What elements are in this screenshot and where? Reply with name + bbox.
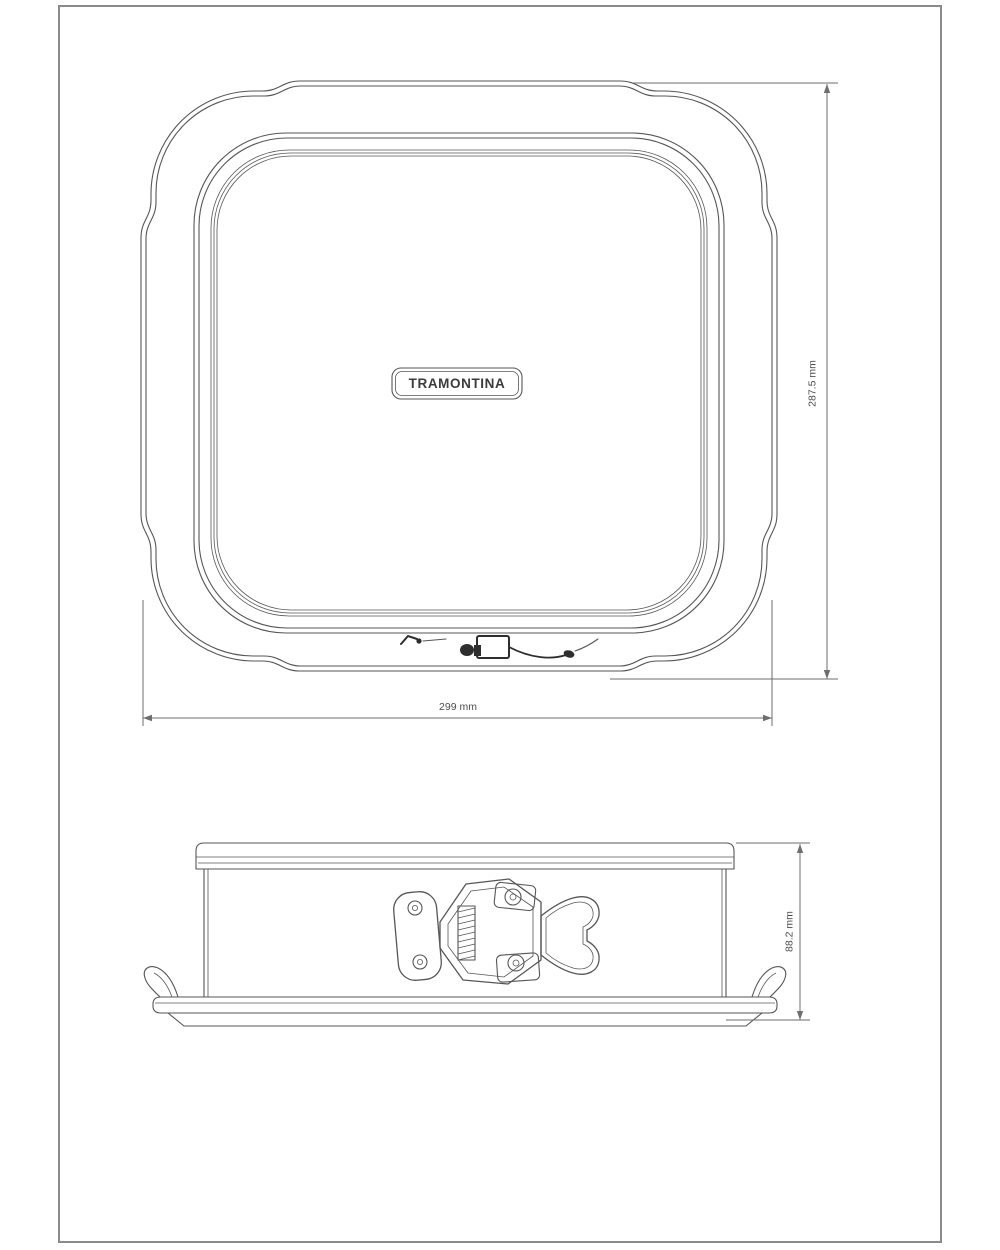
brand-logo-label: TRAMONTINA — [392, 368, 522, 399]
side-view-height-dimension — [726, 843, 810, 1020]
drawing-frame — [59, 6, 941, 1242]
base-flange — [153, 997, 777, 1013]
latch-tab-bottom — [496, 953, 540, 983]
depth-dimension-label: 88.2 mm — [784, 892, 797, 972]
width-dimension-label: 299 mm — [418, 701, 498, 714]
rivet-top-left — [408, 901, 422, 915]
arrow-up-icon — [797, 844, 803, 853]
latch-lever-grip-inner — [546, 902, 593, 969]
latch-pin-dot — [416, 638, 421, 643]
latch-tab-top — [494, 882, 536, 911]
latch-clamp-body — [440, 879, 541, 984]
rim-band — [196, 843, 734, 869]
latch-top-view — [401, 636, 598, 659]
height-dimension-label: 287.5 mm — [807, 344, 820, 424]
base-tab-right — [752, 967, 786, 997]
drawing-svg — [0, 0, 1000, 1250]
rivet-top-left-center — [412, 905, 417, 910]
base-tab-left — [144, 967, 178, 997]
latch-lever-grip — [541, 897, 599, 974]
latch-lever-tail — [575, 639, 598, 651]
latch-clamp-bracket — [477, 636, 509, 658]
arrow-left-icon — [143, 715, 152, 721]
latch-clamp-edge — [474, 645, 481, 656]
latch-pin-mark — [401, 636, 417, 644]
latch-side-view — [392, 879, 599, 984]
technical-drawing-canvas: TRAMONTINA 287.5 mm 299 mm 88.2 mm — [0, 0, 1000, 1250]
latch-link-line — [423, 639, 446, 641]
rivet-top-right-center — [510, 894, 516, 900]
latch-hinge-blob — [460, 644, 474, 656]
arrow-up-icon — [824, 84, 830, 93]
arrow-down-icon — [824, 670, 830, 679]
base-plate — [168, 1013, 762, 1026]
side-view — [144, 843, 810, 1026]
latch-spring-hatch — [458, 908, 475, 960]
base-tab-right-outline — [752, 967, 786, 997]
latch-lever-arm — [509, 647, 566, 658]
top-view — [141, 81, 838, 726]
latch-lever-tip — [563, 649, 575, 659]
rivet-bottom-right-center — [513, 960, 519, 966]
base-tab-left-outline — [144, 967, 178, 997]
arrow-right-icon — [763, 715, 772, 721]
rivet-bottom-left — [413, 955, 427, 969]
rivet-bottom-left-center — [417, 959, 422, 964]
arrow-down-icon — [797, 1011, 803, 1020]
